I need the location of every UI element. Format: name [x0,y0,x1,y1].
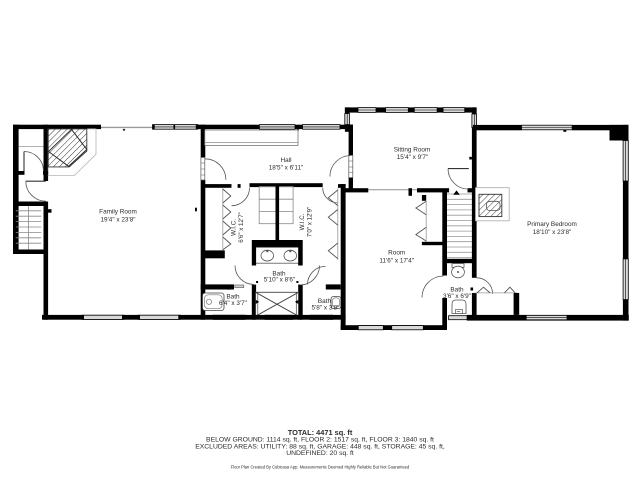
svg-text:Floor Plan Created By Cubicasa: Floor Plan Created By Cubicasa App. Meas… [231,464,410,469]
svg-text:UNDEFINED: 20 sq. ft: UNDEFINED: 20 sq. ft [286,450,354,457]
svg-text:19'4" x 23'8": 19'4" x 23'8" [100,217,135,224]
svg-text:5'8" x 3'8": 5'8" x 3'8" [312,305,340,312]
svg-text:Hall: Hall [280,157,291,164]
svg-text:3'6" x 6'9": 3'6" x 6'9" [443,293,471,300]
svg-text:6'4" x 3'7": 6'4" x 3'7" [219,300,247,307]
svg-text:W.I.C.: W.I.C. [299,213,306,230]
svg-text:W.I.C.: W.I.C. [231,219,238,236]
svg-text:Sitting Room: Sitting Room [394,147,431,154]
svg-text:Family Room: Family Room [99,209,137,216]
svg-text:Room: Room [388,250,405,257]
svg-text:TOTAL: 4471 sq. ft: TOTAL: 4471 sq. ft [288,428,353,437]
svg-text:15'4" x 9'7": 15'4" x 9'7" [397,154,429,161]
svg-text:11'6" x 17'4": 11'6" x 17'4" [379,258,414,265]
svg-text:5'10" x 8'6": 5'10" x 8'6" [264,276,296,283]
svg-text:Primary Bedroom: Primary Bedroom [527,221,577,228]
svg-text:18'10" x 23'8": 18'10" x 23'8" [533,229,572,236]
svg-text:18'5" x 6'11": 18'5" x 6'11" [269,165,304,172]
svg-text:6'6" x 12'7": 6'6" x 12'7" [238,212,245,243]
svg-text:7'0" x 12'9": 7'0" x 12'9" [306,207,313,238]
